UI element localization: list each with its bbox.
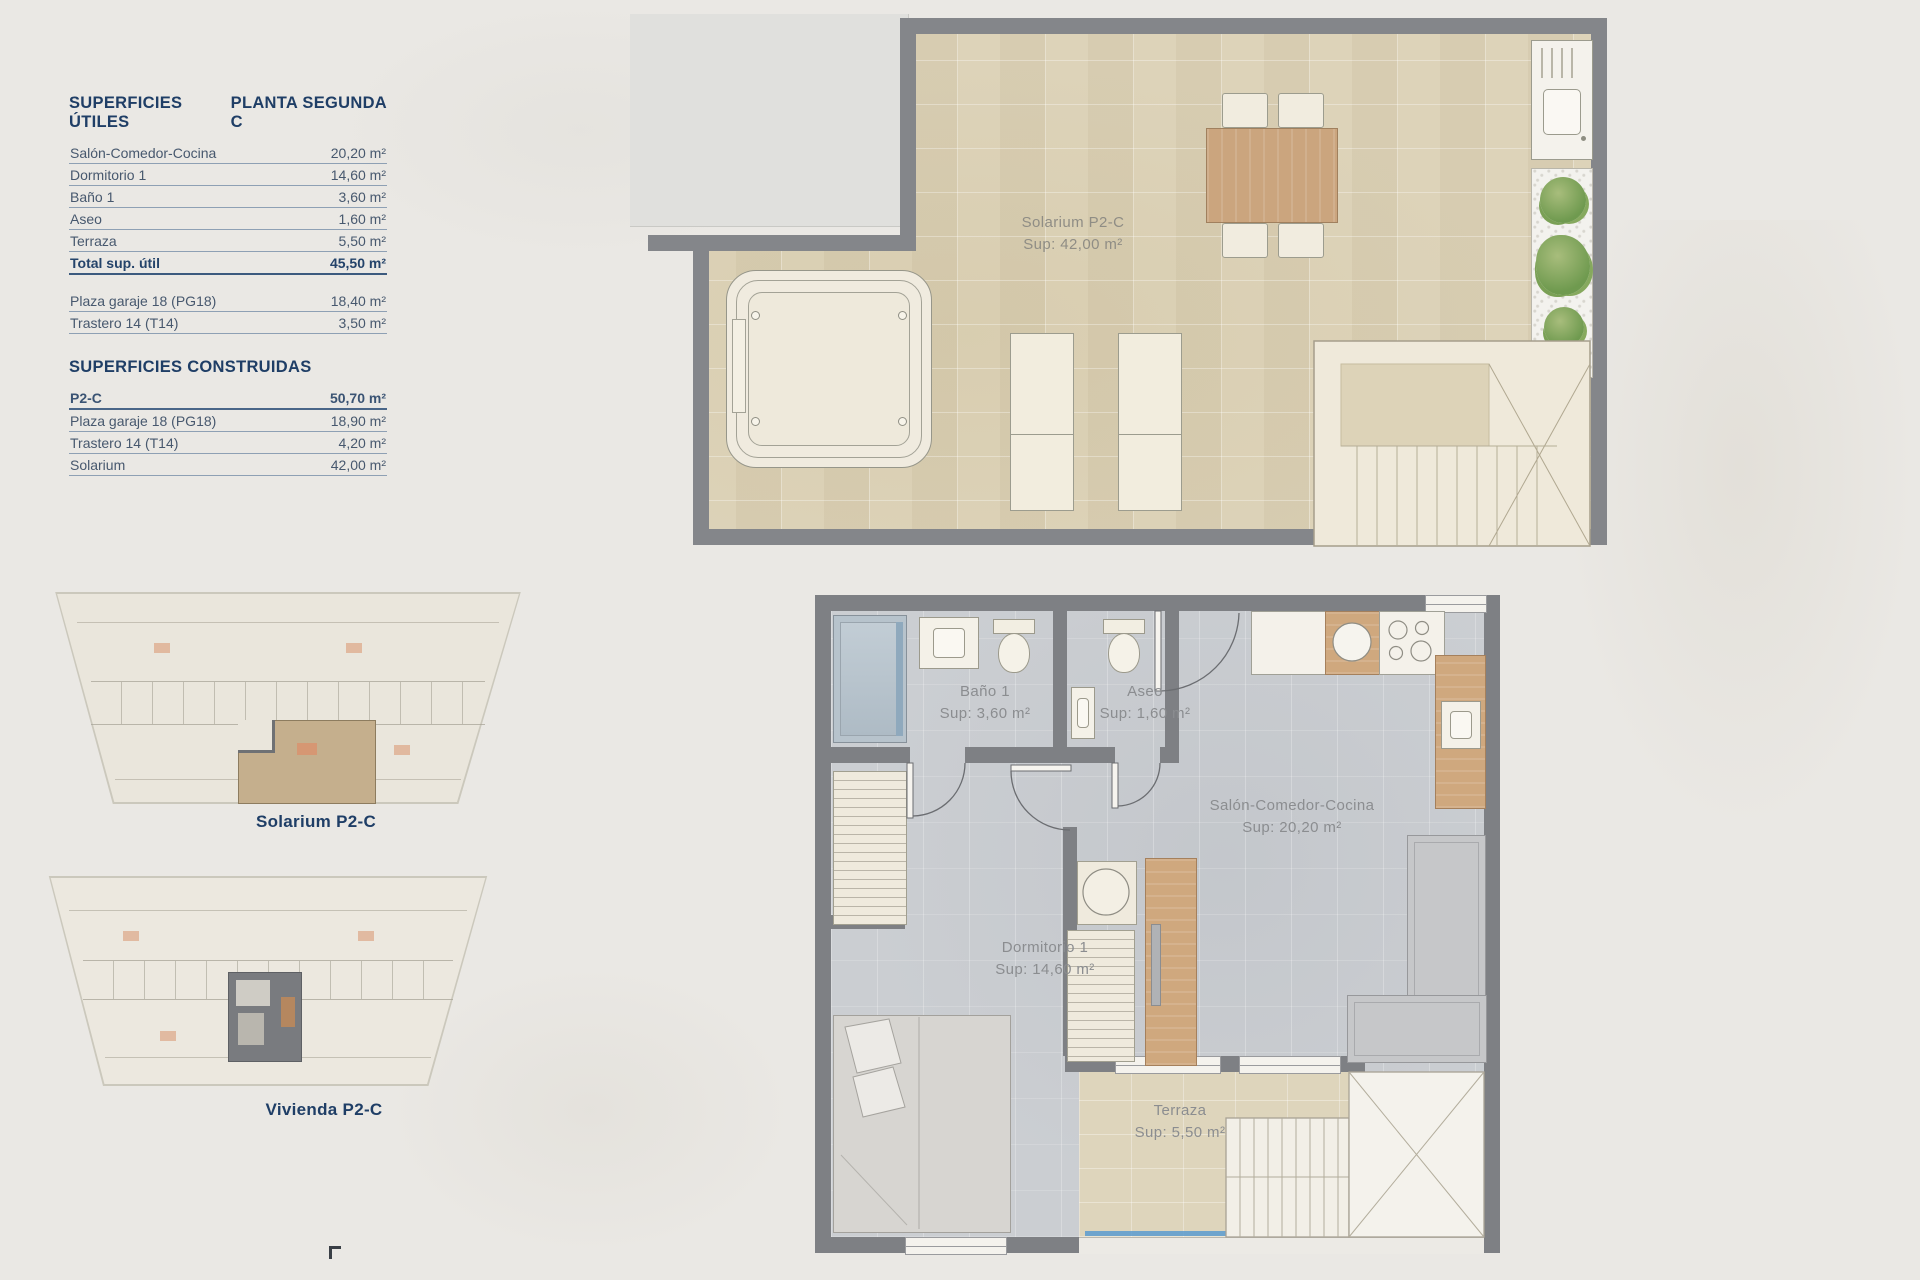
table-row: Terraza5,50 m² bbox=[69, 230, 387, 252]
key-plan-label: Vivienda P2-C bbox=[174, 1100, 474, 1120]
unit-wall-notch bbox=[238, 720, 275, 753]
room-label-terraza: Terraza Sup: 5,50 m² bbox=[1090, 1100, 1270, 1144]
room-area: Sup: 3,60 m² bbox=[910, 703, 1060, 725]
room-area: Sup: 42,00 m² bbox=[973, 234, 1173, 256]
room-name: Salón-Comedor-Cocina bbox=[1172, 795, 1412, 817]
room-label-salon: Salón-Comedor-Cocina Sup: 20,20 m² bbox=[1172, 795, 1412, 839]
jacuzzi-jet bbox=[751, 311, 760, 320]
jacuzzi-jet bbox=[898, 311, 907, 320]
outdoor-kitchen-sink bbox=[1531, 40, 1593, 160]
table-row: Dormitorio 114,60 m² bbox=[69, 164, 387, 186]
dining-table bbox=[1206, 128, 1338, 223]
table-row: Salón-Comedor-Cocina20,20 m² bbox=[69, 142, 387, 164]
table-row: Baño 13,60 m² bbox=[69, 186, 387, 208]
chair bbox=[1278, 93, 1324, 128]
row-value: 18,90 m² bbox=[331, 413, 386, 429]
chair bbox=[1222, 93, 1268, 128]
room-name: Terraza bbox=[1090, 1100, 1270, 1122]
row-label: Baño 1 bbox=[70, 189, 114, 205]
furniture-mark bbox=[160, 1031, 176, 1041]
sun-lounger bbox=[1118, 333, 1182, 511]
row-value: 14,60 m² bbox=[331, 167, 386, 183]
jacuzzi-control-panel bbox=[732, 319, 746, 413]
construidas-title: SUPERFICIES CONSTRUIDAS bbox=[69, 358, 387, 377]
room-area: Sup: 14,60 m² bbox=[945, 959, 1145, 981]
highlighted-unit-solarium bbox=[238, 720, 376, 804]
plan-line bbox=[69, 910, 467, 911]
row-label: Total sup. útil bbox=[70, 255, 160, 271]
key-plan-vivienda bbox=[42, 876, 494, 1086]
row-label: Aseo bbox=[70, 211, 102, 227]
staircase bbox=[1313, 340, 1591, 547]
tap-icon bbox=[1581, 136, 1586, 141]
vivienda-floor-plan: Baño 1 Sup: 3,60 m² Aseo Sup: 1,60 m² Sa… bbox=[815, 595, 1500, 1253]
row-label: Dormitorio 1 bbox=[70, 167, 146, 183]
row-label: Plaza garaje 18 (PG18) bbox=[70, 413, 216, 429]
sink-basin bbox=[1543, 89, 1581, 135]
unit-room bbox=[238, 1013, 264, 1045]
planta-title: PLANTA SEGUNDA C bbox=[231, 94, 387, 132]
row-value: 42,00 m² bbox=[331, 457, 386, 473]
floor-plan-sheet: SUPERFICIES ÚTILES PLANTA SEGUNDA C Saló… bbox=[0, 0, 1920, 1280]
row-value: 1,60 m² bbox=[339, 211, 386, 227]
utiles-title: SUPERFICIES ÚTILES bbox=[69, 94, 231, 132]
room-name: Baño 1 bbox=[910, 681, 1060, 703]
jacuzzi-jet bbox=[751, 417, 760, 426]
watermark-blotch bbox=[1560, 220, 1920, 840]
table-mark bbox=[297, 743, 317, 755]
chair bbox=[1278, 223, 1324, 258]
room-name: Solarium P2-C bbox=[973, 212, 1173, 234]
plant-icon bbox=[1540, 177, 1586, 223]
room-area: Sup: 20,20 m² bbox=[1172, 817, 1412, 839]
furniture-mark bbox=[346, 643, 362, 653]
table-row: Trastero 14 (T14)3,50 m² bbox=[69, 312, 387, 334]
row-label: Trastero 14 (T14) bbox=[70, 315, 178, 331]
lounger-fold bbox=[1119, 434, 1181, 435]
row-value: 3,60 m² bbox=[339, 189, 386, 205]
table-total-row: Total sup. útil45,50 m² bbox=[69, 252, 387, 275]
jacuzzi-jet bbox=[898, 417, 907, 426]
room-label-dormitorio: Dormitorio 1 Sup: 14,60 m² bbox=[945, 937, 1145, 981]
plan-line bbox=[77, 622, 499, 623]
row-value: 5,50 m² bbox=[339, 233, 386, 249]
room-name: Aseo bbox=[1080, 681, 1210, 703]
row-label: Plaza garaje 18 (PG18) bbox=[70, 293, 216, 309]
panel-header: SUPERFICIES ÚTILES PLANTA SEGUNDA C bbox=[69, 94, 387, 132]
key-plan-solarium bbox=[48, 592, 528, 804]
key-plan-label: Solarium P2-C bbox=[166, 812, 466, 832]
corridor-band bbox=[91, 681, 485, 725]
drainer-icon bbox=[1541, 48, 1581, 78]
table-row: Solarium42,00 m² bbox=[69, 454, 387, 476]
room-label-aseo: Aseo Sup: 1,60 m² bbox=[1080, 681, 1210, 725]
table-row: Plaza garaje 18 (PG18)18,90 m² bbox=[69, 410, 387, 432]
room-label-bano: Baño 1 Sup: 3,60 m² bbox=[910, 681, 1060, 725]
row-label: Terraza bbox=[70, 233, 117, 249]
row-label: Trastero 14 (T14) bbox=[70, 435, 178, 451]
furniture-mark bbox=[358, 931, 374, 941]
jacuzzi bbox=[726, 270, 932, 468]
row-value: 18,40 m² bbox=[331, 293, 386, 309]
sun-lounger bbox=[1010, 333, 1074, 511]
row-label: Salón-Comedor-Cocina bbox=[70, 145, 216, 161]
furniture-mark bbox=[123, 931, 139, 941]
furniture-mark bbox=[394, 745, 410, 755]
partial-logo-mark bbox=[329, 1246, 341, 1259]
row-label: Solarium bbox=[70, 457, 125, 473]
row-value: 50,70 m² bbox=[330, 390, 386, 406]
highlighted-unit-vivienda bbox=[228, 972, 302, 1062]
solarium-room-label: Solarium P2-C Sup: 42,00 m² bbox=[973, 212, 1173, 256]
table-row: Aseo1,60 m² bbox=[69, 208, 387, 230]
room-name: Dormitorio 1 bbox=[945, 937, 1145, 959]
areas-panel: SUPERFICIES ÚTILES PLANTA SEGUNDA C Saló… bbox=[69, 94, 387, 476]
table-row: Trastero 14 (T14)4,20 m² bbox=[69, 432, 387, 454]
table-row: P2-C50,70 m² bbox=[69, 387, 387, 410]
row-label: P2-C bbox=[70, 390, 102, 406]
row-value: 3,50 m² bbox=[339, 315, 386, 331]
room-area: Sup: 1,60 m² bbox=[1080, 703, 1210, 725]
row-value: 4,20 m² bbox=[339, 435, 386, 451]
row-value: 45,50 m² bbox=[330, 255, 386, 271]
furniture-mark bbox=[154, 643, 170, 653]
unit-furniture bbox=[281, 997, 295, 1027]
room-area: Sup: 5,50 m² bbox=[1090, 1122, 1270, 1144]
chair bbox=[1222, 223, 1268, 258]
palm-icon bbox=[1536, 235, 1590, 295]
row-value: 20,20 m² bbox=[331, 145, 386, 161]
lounger-fold bbox=[1011, 434, 1073, 435]
unit-room bbox=[236, 980, 270, 1006]
jacuzzi-basin bbox=[748, 292, 910, 446]
table-row: Plaza garaje 18 (PG18)18,40 m² bbox=[69, 290, 387, 312]
